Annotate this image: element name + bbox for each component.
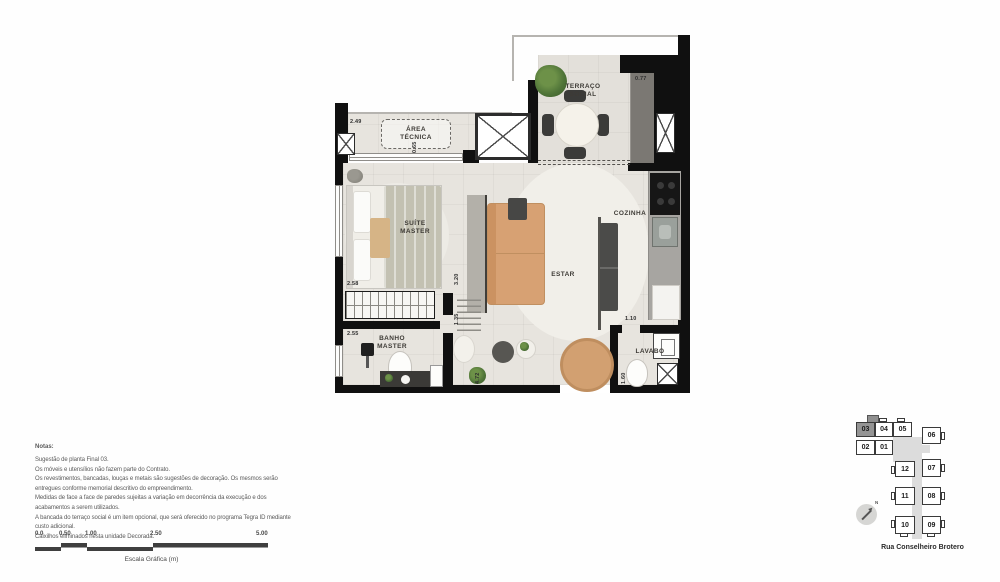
keyplan-unit-01: 01	[875, 440, 893, 455]
wall	[443, 293, 453, 315]
duvet	[384, 186, 441, 288]
sofa-side-table	[508, 198, 527, 220]
keyplan-tick	[941, 464, 945, 472]
fridge	[600, 223, 618, 311]
plant	[535, 65, 567, 97]
dimension-label: 2.58	[347, 281, 359, 287]
floor-plan: ÁREA TÉCNICA TERRAÇO SOCIAL SUÍTE MASTER…	[335, 35, 695, 397]
notes-line: entregues conforme memorial descritivo d…	[35, 485, 297, 495]
wall	[620, 55, 678, 73]
notes-line: Medidas de face a face de paredes sujeit…	[35, 494, 297, 504]
street-label: Rua Conselheiro Brotero	[850, 544, 995, 551]
keyplan-corridor	[922, 445, 930, 453]
wardrobe	[345, 291, 435, 319]
dimension-label: 1.60	[621, 372, 627, 384]
fridge-split	[600, 267, 618, 269]
dimension-label: 4.72	[475, 372, 481, 384]
notes-block: Notas: Sugestão de planta Final 03. Os m…	[35, 444, 297, 542]
scale-tick: 5.00	[256, 531, 268, 537]
cooktop	[650, 173, 680, 215]
terrace-chair	[542, 114, 554, 136]
bathtub	[430, 365, 443, 387]
terrace-chair	[564, 147, 586, 159]
shaft	[656, 113, 675, 153]
north-arrow: N	[856, 504, 877, 525]
dimension-label: 0.65	[412, 141, 418, 153]
scale-tick: 0.0	[35, 531, 43, 537]
sofa-back	[488, 204, 496, 304]
dimension-label: 1.10	[625, 316, 637, 322]
wall	[640, 325, 680, 333]
dimension-label: 1.35	[454, 313, 460, 325]
wardrobe-rail	[346, 305, 434, 306]
pillow	[353, 239, 371, 281]
keyplan-tick	[941, 520, 945, 528]
floor-plan-sheet: ÁREA TÉCNICA TERRAÇO SOCIAL SUÍTE MASTER…	[0, 0, 1000, 582]
north-label: N	[875, 500, 878, 505]
keyplan-unit-04: 04	[875, 422, 893, 437]
toilet	[626, 359, 648, 387]
kitchen-sink	[652, 217, 678, 247]
duct-shaft	[475, 113, 531, 160]
shaft	[657, 363, 678, 385]
kitchen-cart	[652, 285, 680, 320]
ladder-shelf	[457, 297, 481, 331]
keyplan-unit-08: 08	[922, 487, 941, 505]
window	[335, 345, 343, 377]
dimension-label: 2.55	[347, 331, 359, 337]
keyplan-tick	[941, 492, 945, 500]
keyplan-unit-10: 10	[895, 516, 915, 534]
notes-line: A bancada do terraço social é um item op…	[35, 514, 297, 524]
terrace-glass-line	[538, 164, 630, 165]
shower-head	[361, 343, 374, 356]
dimension-label: 3.20	[454, 273, 460, 285]
scale-segment	[35, 547, 61, 551]
notes-line: acabamentos a serem utilizados.	[35, 504, 297, 514]
shaft	[337, 133, 355, 155]
sofa-cushion-line	[496, 253, 544, 254]
wall	[610, 325, 622, 333]
notes-line: Os móveis e utensílios não fazem parte d…	[35, 466, 297, 476]
scale-caption: Escala Gráfica (m)	[35, 556, 268, 563]
window	[335, 185, 343, 257]
wall	[628, 163, 680, 171]
coffee-table	[492, 341, 514, 363]
sink-basin	[659, 225, 671, 239]
keyplan-unit-11: 11	[895, 487, 915, 505]
keyplan-unit-09: 09	[922, 516, 941, 534]
wall	[337, 321, 440, 329]
outline-left	[512, 35, 514, 81]
notes-line: Sugestão de planta Final 03.	[35, 456, 297, 466]
room-label-estar: ESTAR	[551, 271, 575, 279]
room-label-cozinha: COZINHA	[614, 210, 646, 218]
round-armchair	[560, 338, 614, 392]
pillow	[353, 191, 371, 233]
vanity-sink	[401, 375, 410, 384]
scale-segment	[61, 543, 87, 547]
plant	[385, 374, 393, 382]
room-label-terraco-social: TERRAÇO SOCIAL	[566, 83, 601, 99]
terrace-table	[555, 103, 599, 147]
burner	[657, 182, 664, 189]
scale-tick: 0.50	[59, 531, 71, 537]
notes-line: Os revestimentos, bancadas, louças e met…	[35, 475, 297, 485]
shower-stem	[366, 356, 369, 368]
bathroom-vanity	[380, 371, 430, 387]
keyplan-unit-07: 07	[922, 459, 941, 477]
dimension-label: 0.77	[635, 76, 647, 82]
terrace-counter	[630, 73, 654, 163]
key-plan: 03 04 05 02 01 06 07 12 11 08 10 09 N Ru…	[850, 412, 995, 562]
bed	[346, 185, 442, 289]
room-label-lavabo: LAVABO	[636, 348, 665, 356]
pouf	[453, 335, 475, 363]
keyplan-unit-05: 05	[893, 422, 912, 437]
window	[349, 153, 463, 161]
keyplan-unit-03: 03	[856, 422, 875, 437]
tv-panel	[467, 195, 487, 313]
plant	[520, 342, 529, 351]
scale-segment	[153, 543, 268, 547]
scale-tick: 2.50	[150, 531, 162, 537]
room-label-suite-master: SUÍTE MASTER	[400, 220, 430, 236]
keyplan-unit-02: 02	[856, 440, 875, 455]
room-label-area-tecnica: ÁREA TÉCNICA	[400, 126, 432, 142]
keyplan-unit-12: 12	[895, 461, 915, 477]
room-label-banho-master: BANHO MASTER	[377, 335, 407, 351]
notes-title: Notas:	[35, 444, 297, 450]
outline-top	[512, 35, 678, 37]
scale-tick: 1.00	[85, 531, 97, 537]
dimension-label: 2.49	[350, 119, 362, 125]
terrace-glass-line	[538, 160, 630, 161]
dry-plant	[347, 169, 363, 183]
keyplan-unit-06: 06	[922, 427, 941, 444]
bed-throw	[370, 218, 390, 258]
keyplan-tick	[941, 432, 945, 440]
scale-segment	[87, 547, 153, 551]
wall	[443, 333, 453, 385]
